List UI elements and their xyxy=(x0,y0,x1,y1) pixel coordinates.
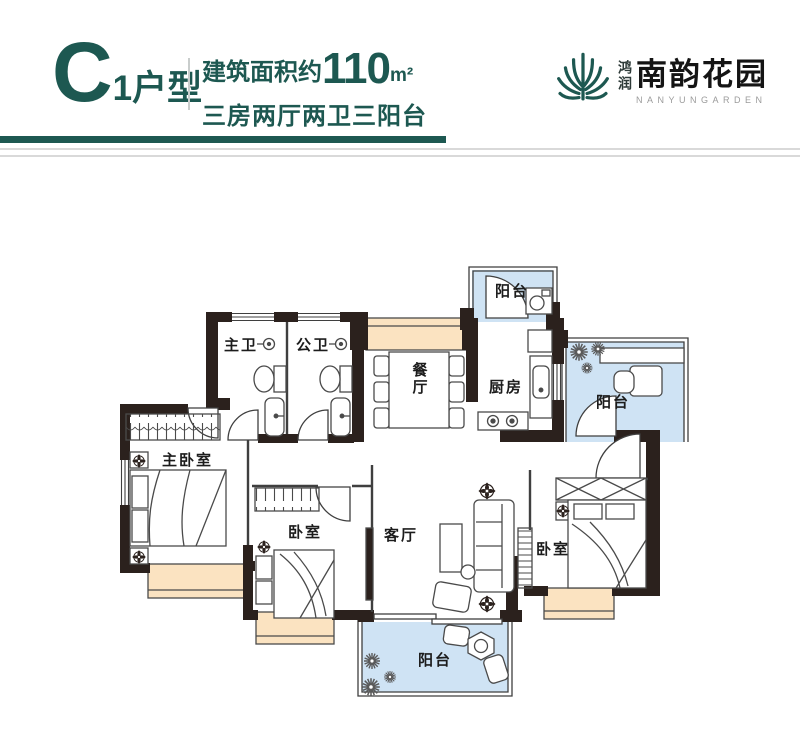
room-label-bedroom-right: 卧室 xyxy=(536,540,570,558)
room-label-living: 客厅 xyxy=(383,526,418,544)
room-label-bedroom-center: 卧室 xyxy=(288,523,322,541)
room-label-balcony-top: 阳台 xyxy=(495,282,529,300)
master-bedroom-furniture xyxy=(126,414,226,564)
room-label-bath-public: 公卫 xyxy=(296,337,330,354)
room-label-kitchen: 厨房 xyxy=(489,378,523,396)
room-label-master-bedroom: 主卧室 xyxy=(162,451,213,469)
room-label-balcony-right: 阳台 xyxy=(596,393,630,411)
room-label-balcony-bottom: 阳台 xyxy=(418,651,452,669)
floorplan: 阳台 主卫 公卫 餐厅 厨房 阳台 主卧室 卧室 客厅 卧室 阳台 xyxy=(0,0,800,732)
room-label-dining: 餐厅 xyxy=(411,361,428,396)
right-bedroom-furniture xyxy=(556,478,646,588)
bath-master-fixtures xyxy=(254,339,286,437)
washer xyxy=(526,288,552,314)
room-label-bath-master: 主卫 xyxy=(224,336,258,354)
